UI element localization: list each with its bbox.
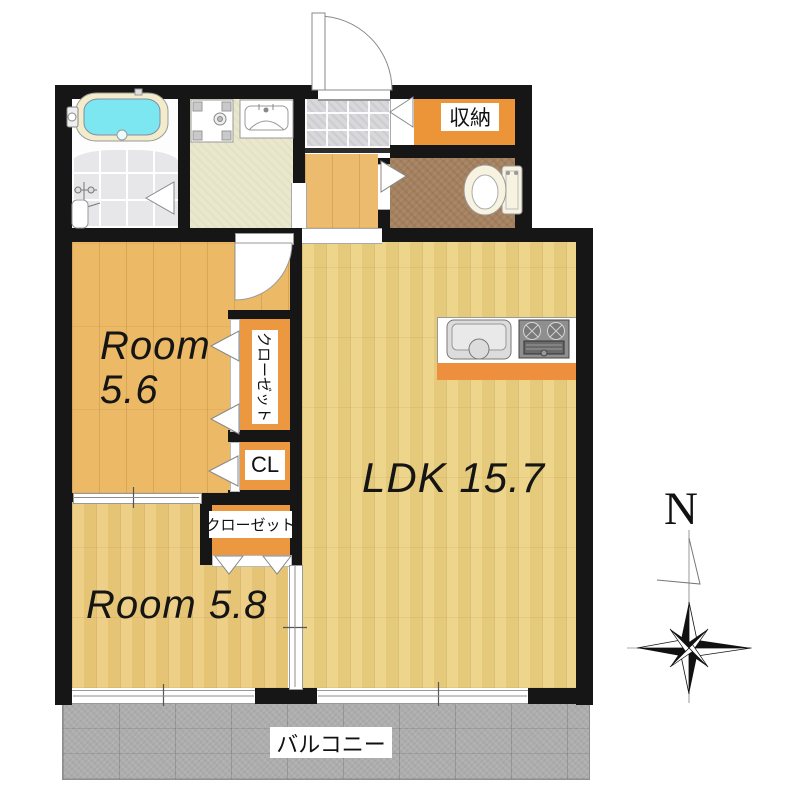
washer-pan-icon [191,100,233,142]
closet-door-arrow-bottom-icon [211,404,239,434]
floor-plan: 収納 クローゼット CL クローゼット バルコニー Room 5.6 Room … [0,0,800,800]
room-5-6-label-line2: 5.6 [100,368,211,412]
toilet-door-arrow-icon [381,161,406,192]
storage-door-arrow-icon [390,97,413,127]
balcony-label: バルコニー [270,727,392,758]
hcloset-door-arrow-right-icon [263,556,291,574]
closet-horizontal-label-text: クローゼット [206,514,296,535]
storage-label-text: 収納 [449,102,491,132]
ldk-label: LDK 15.7 [362,454,545,502]
hcloset-door-arrow-left-icon [215,556,243,574]
wash-basin-icon [240,100,293,138]
room-5-6-label-line1: Room [100,324,211,368]
balcony-label-text: バルコニー [276,727,386,759]
closet-vertical-label-text: クローゼット [255,332,276,422]
kitchen-sink-icon [447,320,511,359]
cl-door-arrow-icon [209,456,238,486]
storage-label: 収納 [441,103,499,131]
stove-icon [519,320,569,358]
cl-label-text: CL [251,452,279,478]
room-5-6-label: Room 5.6 [100,324,211,412]
bathtub-icon [67,89,168,141]
bathroom-door-arrow-icon [146,182,174,214]
compass-icon [627,530,752,703]
entrance-door-swing-icon [312,13,392,90]
bath-stool-icon [72,200,88,228]
room56-door-swing-icon [235,243,292,300]
toilet-icon [464,165,522,215]
closet-horizontal-label: クローゼット [209,511,292,538]
room-5-8-label: Room 5.8 [86,583,267,628]
closet-door-arrow-top-icon [211,331,239,361]
cl-label: CL [245,450,285,480]
closet-vertical-label: クローゼット [252,330,278,424]
compass-north-label: N [664,482,698,536]
